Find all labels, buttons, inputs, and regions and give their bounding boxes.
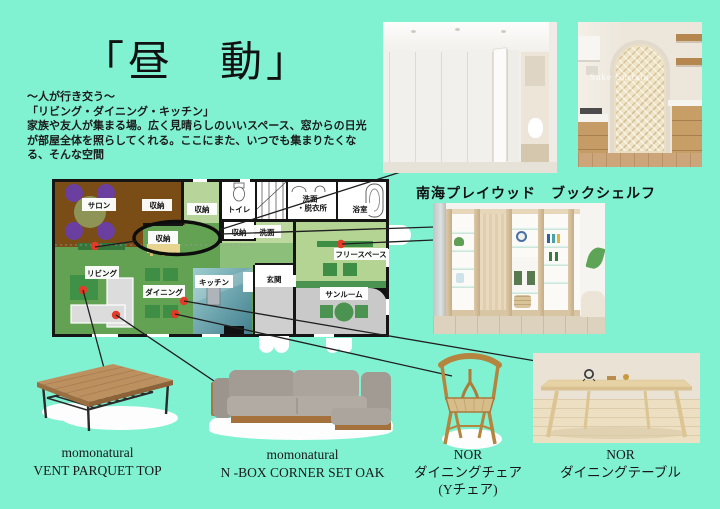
wall bbox=[549, 22, 557, 173]
window bbox=[525, 56, 545, 86]
coffee-table-image bbox=[25, 356, 185, 434]
wood-shelf bbox=[676, 34, 702, 41]
room-label-storage-4: 収納 bbox=[148, 231, 178, 244]
salon-shelf bbox=[78, 243, 125, 250]
svg-text:サロン: サロン bbox=[88, 201, 111, 210]
page-title: 「昼 動」 bbox=[82, 28, 312, 89]
white-wardrobe bbox=[389, 52, 493, 162]
room-label-living: リビング bbox=[85, 266, 119, 279]
floor-plan: サロン 収納 収納 トイレ 洗面 ・脱衣所 浴室 洗面 収納 収納 リビング ダ… bbox=[52, 179, 389, 337]
product-name: VENT PARQUET TOP bbox=[20, 462, 175, 480]
room-label-entrance: 玄関 bbox=[259, 272, 289, 285]
photo-ceiling bbox=[383, 22, 557, 50]
door-swing-arc bbox=[389, 225, 411, 245]
svg-text:キッチン: キッチン bbox=[199, 278, 229, 287]
svg-text:収納: 収納 bbox=[232, 227, 247, 237]
glass-shelf bbox=[544, 227, 568, 230]
svg-text:サンルーム: サンルーム bbox=[325, 290, 363, 299]
bookshelf-photo bbox=[433, 203, 605, 334]
decor-bottle bbox=[557, 234, 560, 243]
y-chair-image bbox=[428, 350, 512, 452]
room-label-toilet: トイレ bbox=[223, 203, 255, 215]
photo-watermark: Suke Curtain bbox=[590, 72, 649, 82]
door-swing-arc bbox=[339, 338, 352, 353]
svg-text:玄関: 玄関 bbox=[267, 274, 282, 284]
door-swing-arc bbox=[274, 336, 289, 353]
open-door-panel bbox=[493, 47, 507, 165]
svg-text:ダイニング: ダイニング bbox=[145, 287, 183, 297]
inner-bathroom bbox=[521, 52, 549, 164]
table-top bbox=[541, 380, 692, 387]
arch-curtain bbox=[614, 44, 666, 153]
product-brand: NOR bbox=[548, 446, 693, 464]
sofa bbox=[581, 291, 605, 317]
room-label-kitchen: キッチン bbox=[195, 275, 233, 288]
wood-floor bbox=[578, 153, 702, 167]
room-label-storage-3: 収納 bbox=[232, 227, 247, 237]
corner-sofa-image bbox=[203, 356, 399, 442]
toilet bbox=[528, 118, 543, 138]
svg-text:収納: 収納 bbox=[150, 200, 165, 210]
glass-shelf bbox=[452, 285, 474, 288]
svg-text:浴室: 浴室 bbox=[353, 204, 368, 214]
product-label-nbox-sofa: momonatural N -BOX CORNER SET OAK bbox=[210, 446, 395, 481]
counter bbox=[578, 114, 608, 122]
room-label-free-space: フリースペース bbox=[334, 248, 388, 260]
svg-text:フリースペース: フリースペース bbox=[335, 250, 386, 259]
range-hood bbox=[578, 36, 600, 62]
decor-bottle bbox=[549, 252, 552, 261]
decor-basket bbox=[514, 295, 531, 308]
glass-shelf bbox=[512, 227, 538, 230]
product-name: N -BOX CORNER SET OAK bbox=[210, 464, 395, 482]
room-label-bath: 浴室 bbox=[346, 203, 374, 215]
glass-shelf bbox=[452, 231, 474, 234]
glass-shelf bbox=[452, 249, 474, 252]
chair bbox=[514, 271, 522, 285]
product-brand: momonatural bbox=[20, 444, 175, 462]
glass-shelf bbox=[544, 281, 568, 284]
open-door-panel bbox=[507, 49, 519, 163]
shelf-frame bbox=[446, 209, 580, 214]
decor-bottle bbox=[555, 252, 558, 261]
chair-y-splat bbox=[462, 369, 478, 400]
svg-text:洗面: 洗面 bbox=[260, 227, 275, 237]
product-brand: momonatural bbox=[210, 446, 395, 464]
intro-line-4: が部屋全体を照らしてくれる。ここにまた、いつでも集まりたくな bbox=[27, 134, 387, 149]
decor-bottle bbox=[547, 234, 550, 243]
room-label-salon: サロン bbox=[82, 198, 116, 211]
chair bbox=[527, 271, 535, 285]
product-brand: NOR bbox=[408, 446, 528, 464]
svg-text:リビング: リビング bbox=[87, 268, 117, 278]
room-storage bbox=[183, 179, 220, 223]
room-label-dining: ダイニング bbox=[143, 285, 185, 298]
shelf-pillar bbox=[474, 209, 480, 316]
toilet-icon bbox=[234, 183, 245, 201]
kitchen-arch-photo: Suke Curtain bbox=[578, 22, 702, 167]
room-label-washroom: 洗面 ・脱衣所 bbox=[290, 192, 334, 215]
product-label-dining-chair: NOR ダイニングチェア (Yチェア) bbox=[408, 446, 528, 499]
svg-text:・脱衣所: ・脱衣所 bbox=[297, 203, 327, 213]
sofa-chaise bbox=[331, 408, 391, 425]
intro-line-5: る、そんな空間 bbox=[27, 148, 387, 163]
decor-plant bbox=[454, 237, 464, 246]
product-name: ダイニングチェア bbox=[408, 464, 528, 482]
room-label-storage-1: 収納 bbox=[142, 199, 172, 211]
room-label-sunroom: サンルーム bbox=[320, 287, 368, 300]
dining-table-photo bbox=[533, 353, 700, 443]
sofa-back-cushion bbox=[229, 370, 295, 400]
door-swing-arc bbox=[259, 336, 274, 353]
door-swing-arc bbox=[326, 338, 339, 353]
intro-line-3: 家族や友人が集まる場。広く見晴らしのいいスペース、窓からの日光 bbox=[27, 119, 387, 134]
product-subname: (Yチェア) bbox=[408, 481, 528, 499]
glass-shelf bbox=[452, 267, 474, 270]
decor-plate bbox=[516, 231, 527, 242]
table-decor bbox=[583, 369, 629, 381]
shelf-pillar bbox=[446, 209, 452, 316]
wood-panel bbox=[480, 214, 506, 310]
intro-line-1: 〜人が行き交う〜 bbox=[27, 90, 387, 105]
downlight-icon bbox=[455, 28, 460, 31]
chair-woven-seat bbox=[446, 398, 494, 412]
product-name: ダイニングテーブル bbox=[548, 464, 693, 482]
sofa-back-cushion bbox=[293, 370, 359, 400]
wood-shelf bbox=[676, 58, 702, 65]
glass-shelf bbox=[512, 245, 538, 248]
glass-shelf bbox=[544, 245, 568, 248]
intro-line-2: 「リビング・ダイニング・キッチン」 bbox=[27, 105, 387, 120]
bookshelf-label: 南海プレイウッド ブックシェルフ bbox=[416, 183, 656, 203]
shelf-frame bbox=[446, 310, 580, 316]
shelf-pillar bbox=[568, 209, 574, 316]
room-label-washstand: 洗面 bbox=[253, 225, 281, 238]
glass-shelf bbox=[512, 291, 538, 294]
dining-view bbox=[512, 257, 538, 291]
downlight-icon bbox=[411, 30, 416, 33]
product-label-vent-parquet: momonatural VENT PARQUET TOP bbox=[20, 444, 175, 479]
glass-shelf bbox=[544, 263, 568, 266]
product-label-dining-table: NOR ダイニングテーブル bbox=[548, 446, 693, 481]
sliding-door bbox=[433, 203, 446, 316]
design-board: { "title": "「昼 動」", "intro": { "line1": … bbox=[0, 0, 720, 509]
svg-text:洗面: 洗面 bbox=[303, 194, 318, 204]
decor-bottle bbox=[552, 234, 555, 243]
svg-text:収納: 収納 bbox=[156, 233, 171, 243]
room-label-storage-2: 収納 bbox=[187, 203, 217, 215]
svg-text:トイレ: トイレ bbox=[228, 205, 251, 214]
floor bbox=[383, 162, 557, 173]
closet-room-photo bbox=[383, 22, 557, 173]
floor bbox=[433, 316, 605, 334]
svg-text:収納: 収納 bbox=[195, 204, 210, 214]
bathroom-floor bbox=[521, 144, 549, 164]
intro-text: 〜人が行き交う〜 「リビング・ダイニング・キッチン」 家族や友人が集まる場。広く… bbox=[27, 90, 387, 163]
decor-jar bbox=[456, 273, 464, 283]
downlight-icon bbox=[501, 30, 506, 33]
shelf-unit bbox=[446, 209, 580, 316]
